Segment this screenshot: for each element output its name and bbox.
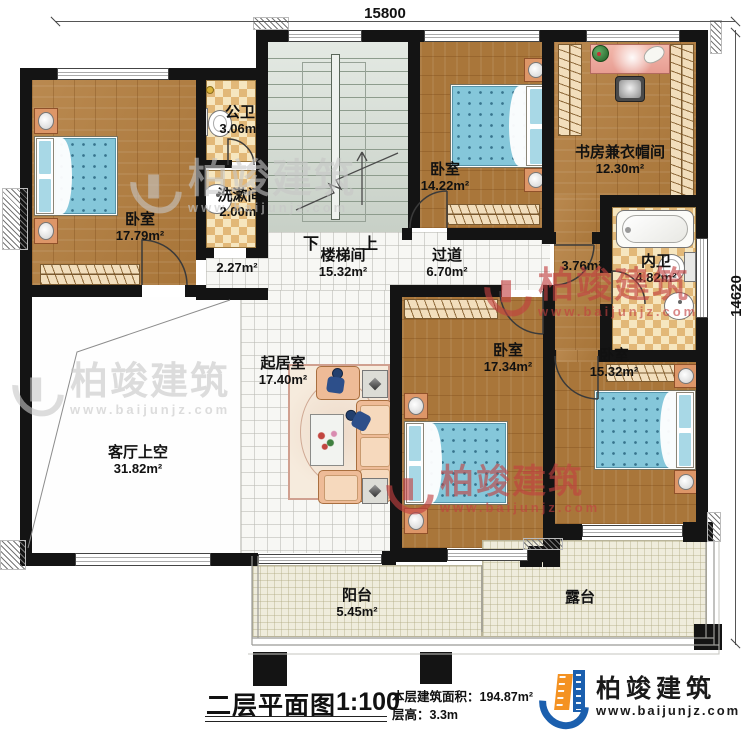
void-boundary-line <box>28 300 230 548</box>
plan-scale: 1:100 <box>336 688 400 717</box>
stair-direction-arrow <box>357 152 367 205</box>
room-label-study: 书房兼衣帽间 12.30m² <box>575 145 665 176</box>
door-arc <box>228 139 254 165</box>
railings <box>252 542 719 645</box>
company-logo: 柏竣建筑 www.baijunjz.com <box>540 668 740 726</box>
room-label-living-void: 客厅上空 31.82m² <box>108 445 168 476</box>
dimension-line-right <box>735 30 736 645</box>
room-label-hall-nook-left: 2.27m² <box>216 260 257 275</box>
room-label-living-room: 起居室 17.40m² <box>259 356 307 387</box>
door-arc <box>500 291 543 334</box>
company-logo-icon <box>540 668 588 726</box>
room-label-stairwell: 楼梯间 15.32m² <box>319 248 367 279</box>
dimension-top: 15800 <box>345 5 425 22</box>
door-arc <box>410 191 447 228</box>
floor-height-note: 层高：3.3m <box>392 704 458 723</box>
company-name: 柏竣建筑 <box>596 676 740 704</box>
stair-break-line <box>296 153 398 210</box>
dimension-line-top <box>55 21 735 22</box>
stair-up-label: 上 <box>362 230 378 254</box>
room-label-bedroom-bottom-right: 卧室 15.32m² <box>590 348 638 379</box>
dimension-right: 14620 <box>728 264 744 328</box>
floor-plan-canvas: 卧室 17.79m² 公卫 3.06m² 洗漱间 2.00m² 楼梯间 15.3… <box>0 0 750 738</box>
room-label-terrace: 露台 <box>565 590 595 606</box>
title-underline <box>205 716 387 722</box>
room-label-public-bath: 公卫 3.06m² <box>219 105 260 136</box>
room-label-washroom: 洗漱间 2.00m² <box>217 188 262 219</box>
stair-down-label: 下 <box>303 230 319 254</box>
room-label-hall-nook-right: 3.76m² <box>561 258 602 273</box>
room-label-bedroom-top-middle: 卧室 14.22m² <box>421 162 469 193</box>
room-label-balcony: 阳台 5.45m² <box>336 588 377 619</box>
door-arc <box>142 240 187 285</box>
room-label-bedroom-top-left: 卧室 17.79m² <box>116 212 164 243</box>
room-label-ensuite-bath: 内卫 4.82m² <box>635 254 676 285</box>
floor-area-note: 本层建筑面积：194.87m² <box>392 686 533 705</box>
room-label-hallway: 过道 6.70m² <box>426 248 467 279</box>
room-label-bedroom-bottom-middle: 卧室 17.34m² <box>484 343 532 374</box>
company-website: www.baijunjz.com <box>596 703 740 718</box>
eave-outline <box>248 540 719 654</box>
